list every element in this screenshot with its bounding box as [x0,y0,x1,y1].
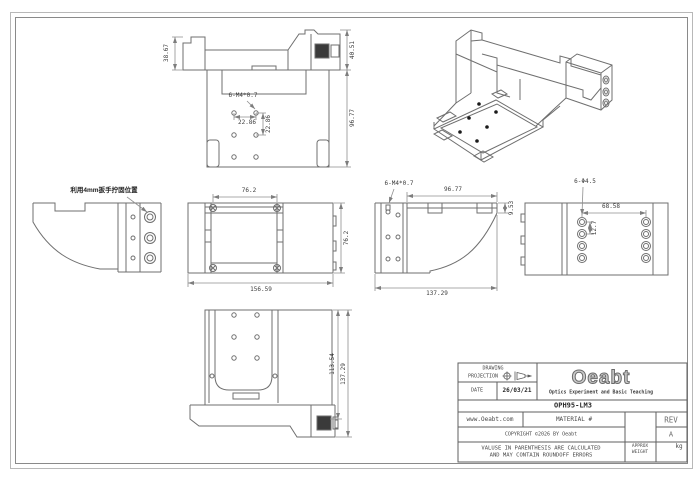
drawing-label: DRAWING [482,367,503,372]
dim-top-left-height: 38.67 [164,44,170,62]
wrench-note: 利用4mm扳手拧固位置 [70,188,137,195]
dim-right-hole-pitch-x: 68.58 [602,204,620,210]
dim-top-thread-callout: 6-M4*0.7 [229,93,258,99]
dim-right-hole-callout: 6-Φ4.5 [574,179,596,185]
date-label: DATE [471,389,483,394]
dim-side-overall-length: 137.29 [426,291,448,297]
rev-value: A [669,432,673,439]
front-view-corner-screws [210,205,281,272]
dim-side-step-height: 9.53 [509,201,515,215]
rev-label: REV [664,416,678,424]
approx-weight-label-line1: APPROX [632,445,648,450]
dim-front-rail-width: 76.2 [242,188,256,194]
right-view-counterbored-holes [578,218,651,263]
copyright-text: COPYRIGHT ©2026 BY Oeabt [505,433,577,438]
side-profile-view-drawing [375,203,497,273]
dim-top-right-height: 40.51 [350,41,356,59]
drawing-linework [0,0,700,478]
dim-front-overall-height: 76.2 [344,231,350,245]
part-number: OPH95-LM3 [554,403,592,410]
dim-top-hole-pitch-x: 22.86 [238,120,256,126]
dim-front-overall-width: 156.59 [250,287,272,293]
side-view-holes [386,205,400,261]
top-view-drawing [183,30,340,167]
weight-unit: kg [675,444,682,450]
iso-side-plate-holes [603,76,609,107]
dim-side-thread-callout: 6-M4*0.7 [385,181,414,187]
drawing-sheet: 38.67 40.51 96.77 6-M4*0.7 22.86 22.86 利… [0,0,700,478]
dim-top-body-height: 96.77 [350,109,356,127]
dim-right-hole-pitch-y: 12.7 [592,221,598,235]
oeabt-logo: Oeabt [572,369,631,388]
front-view-drawing [188,203,336,273]
logo-tagline: Optics Experiment and Basic Teaching [549,392,653,397]
approx-weight-label-line2: WEIGHT [632,451,648,456]
date-value: 26/03/21 [503,388,532,394]
isometric-view-drawing [434,30,612,162]
left-view-small-holes [131,215,135,260]
dim-bottom-overall-depth: 137.29 [341,363,347,385]
material-label: MATERIAL # [556,417,592,423]
bottom-view-hole-pattern [232,313,259,360]
website-label: www.Oeabt.com [467,417,514,423]
bottom-view-drawing [190,310,338,437]
dim-top-hole-pitch-y: 22.86 [266,115,272,133]
disclaimer-line2: AND MAY CONTAIN ROUNDOFF ERRORS [490,453,593,459]
third-angle-projection-icon [503,372,532,381]
disclaimer-line1: VALUSE IN PARENTHESIS ARE CALCULATED [481,446,600,452]
dim-side-top-length: 96.77 [444,187,462,193]
left-view-drawing [33,203,161,272]
left-view-socket-screws [145,212,156,264]
dim-bottom-inner-depth: 113.54 [330,353,336,375]
projection-label: PROJECTION [468,375,498,380]
